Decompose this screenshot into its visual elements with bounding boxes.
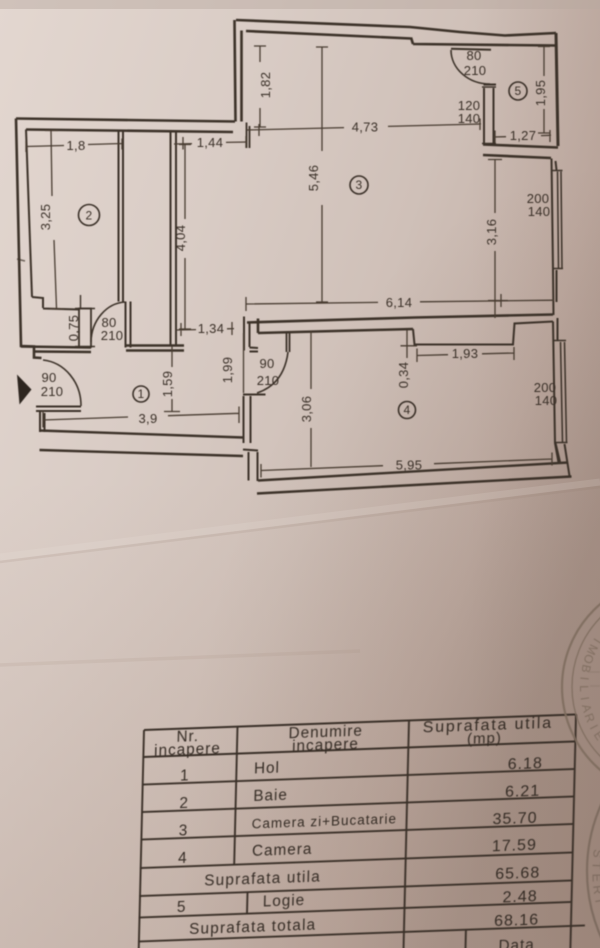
svg-text:90: 90 [259,356,274,371]
svg-text:140: 140 [528,204,551,219]
svg-text:1,82: 1,82 [258,72,273,99]
svg-text:3: 3 [179,822,189,839]
svg-text:6,14: 6,14 [386,295,413,310]
svg-text:1,99: 1,99 [220,357,235,384]
svg-text:1,8: 1,8 [67,138,86,153]
svg-text:E: E [589,873,600,882]
svg-text:1: 1 [180,767,190,784]
svg-text:3,9: 3,9 [139,411,158,426]
svg-text:Camera: Camera [252,841,313,860]
svg-text:(mp): (mp) [467,730,502,748]
svg-text:0,75: 0,75 [66,315,81,342]
svg-text:3: 3 [356,178,363,192]
svg-text:S: S [590,849,600,859]
svg-text:4: 4 [404,403,411,417]
svg-text:1,34: 1,34 [198,321,225,336]
svg-text:68.16: 68.16 [494,912,539,931]
svg-text:210: 210 [464,63,487,78]
svg-text:17.59: 17.59 [492,837,537,856]
svg-text:Baie: Baie [253,787,288,805]
svg-text:1,93: 1,93 [452,346,479,361]
svg-text:90: 90 [41,370,56,385]
svg-text:R: R [590,884,600,895]
svg-text:Data: Data [498,937,535,948]
svg-text:1,44: 1,44 [197,135,224,150]
svg-text:2: 2 [179,795,189,812]
svg-text:2.48: 2.48 [502,888,538,906]
svg-text:210: 210 [257,373,280,388]
svg-text:2: 2 [86,209,93,223]
svg-text:5,95: 5,95 [396,458,423,473]
svg-text:140: 140 [458,111,481,126]
svg-text:1,27: 1,27 [510,128,537,143]
svg-text:T: T [589,862,600,870]
svg-text:65.68: 65.68 [495,865,540,884]
svg-text:L: L [577,685,591,692]
svg-text:Hol: Hol [254,760,280,778]
svg-text:4,73: 4,73 [352,120,379,135]
svg-text:4: 4 [178,850,188,867]
svg-text:incapere: incapere [292,736,359,755]
svg-text:140: 140 [535,393,558,408]
svg-text:4,04: 4,04 [173,225,188,252]
svg-text:1,59: 1,59 [160,371,175,398]
svg-text:1,95: 1,95 [533,80,548,107]
svg-text:6.21: 6.21 [505,783,541,801]
svg-text:incapere: incapere [154,740,221,759]
svg-text:6.18: 6.18 [508,755,544,773]
svg-text:3,16: 3,16 [484,219,499,246]
svg-text:5: 5 [515,84,522,98]
svg-text:210: 210 [101,328,124,343]
svg-text:80: 80 [466,48,481,63]
svg-text:Logie: Logie [263,892,306,911]
svg-text:1: 1 [138,387,145,401]
svg-text:5: 5 [177,899,187,916]
svg-text:5,46: 5,46 [306,165,321,192]
svg-text:210: 210 [41,384,64,399]
svg-text:35.70: 35.70 [492,810,537,829]
svg-text:0,34: 0,34 [396,362,411,389]
svg-text:3,25: 3,25 [38,204,53,231]
svg-text:3,06: 3,06 [299,396,314,423]
